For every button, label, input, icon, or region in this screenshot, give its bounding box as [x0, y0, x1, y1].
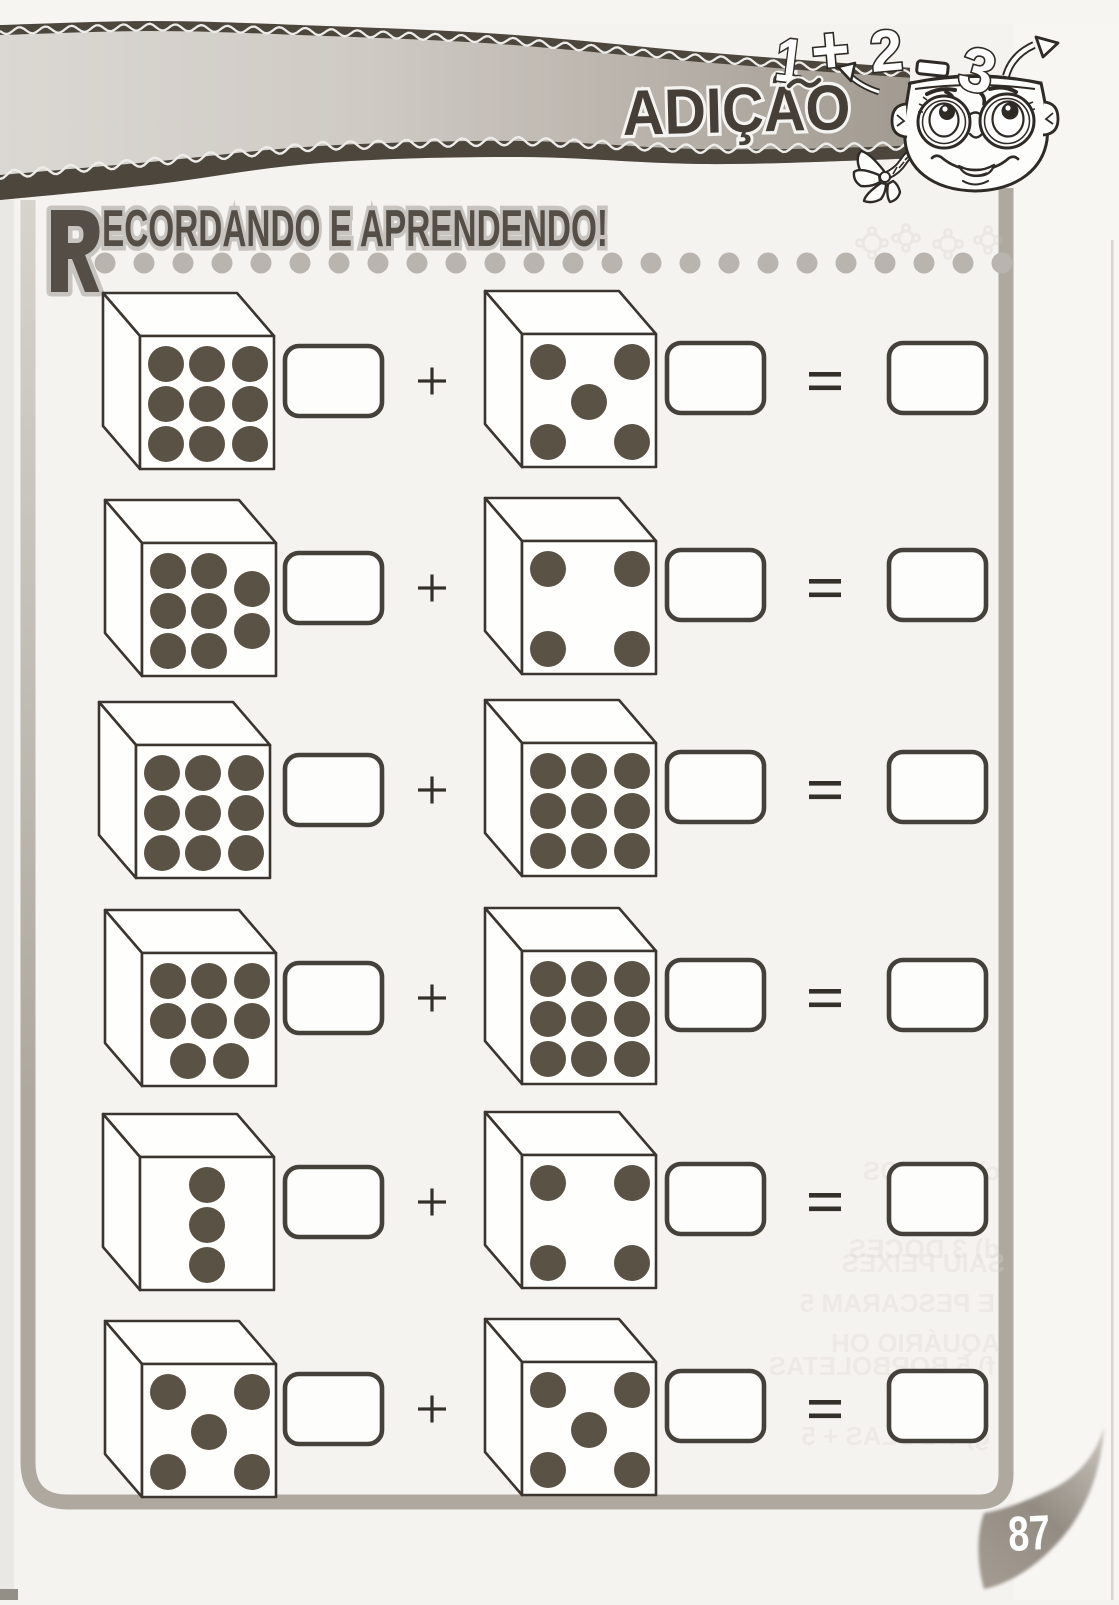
svg-text:ECORDANDO E APRENDENDO!: ECORDANDO E APRENDENDO! — [102, 200, 608, 258]
svg-text:2: 2 — [867, 17, 905, 85]
svg-text:E PESCARAM 5: E PESCARAM 5 — [800, 1288, 995, 1318]
svg-text:87: 87 — [1007, 1506, 1052, 1562]
svg-text:SAIU PEIXES: SAIU PEIXES — [842, 1248, 1005, 1278]
